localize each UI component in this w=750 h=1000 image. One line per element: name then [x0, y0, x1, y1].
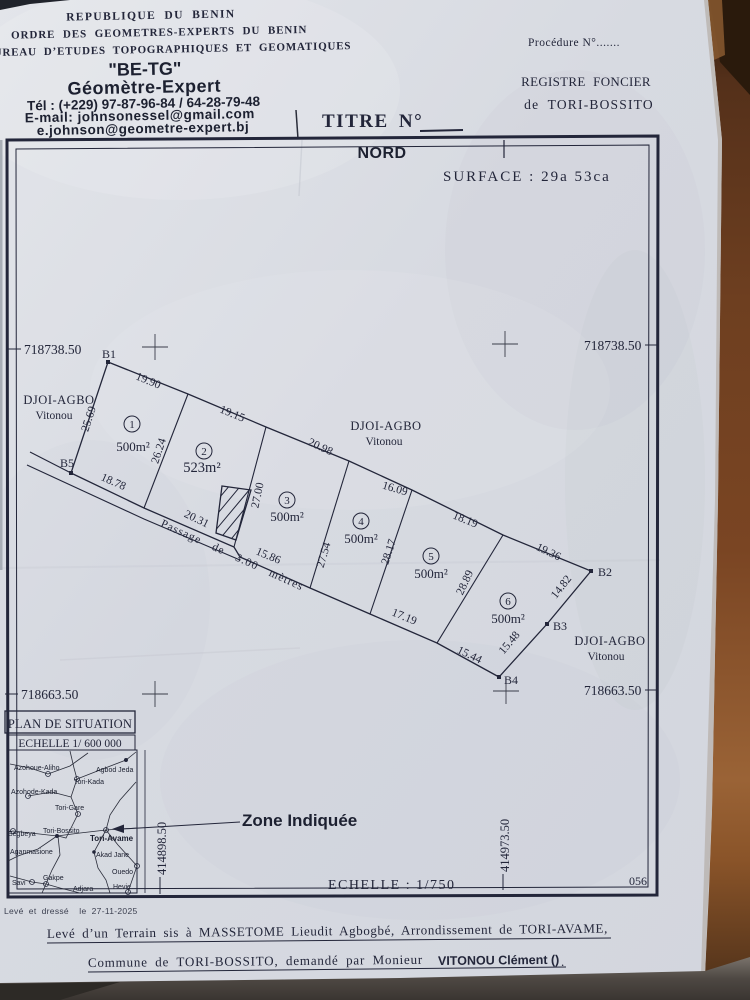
- svg-text:Gakpe: Gakpe: [43, 875, 64, 882]
- svg-text:NORD: NORD: [357, 145, 406, 162]
- svg-text:VITONOU Clément (): VITONOU Clément (): [438, 953, 559, 968]
- svg-text:414973.50: 414973.50: [498, 819, 512, 872]
- svg-text:500m²: 500m²: [491, 611, 525, 626]
- svg-text:718663.50: 718663.50: [584, 683, 642, 698]
- svg-text:500m²: 500m²: [270, 509, 304, 524]
- svg-text:Vitonou: Vitonou: [587, 651, 624, 663]
- svg-text:500m²: 500m²: [414, 566, 448, 581]
- svg-text:500m²: 500m²: [344, 531, 378, 546]
- svg-text:Tori-Kada: Tori-Kada: [74, 779, 104, 786]
- svg-text:Segbeya: Segbeya: [8, 831, 36, 838]
- svg-text:B2: B2: [598, 565, 612, 579]
- svg-text:Levé et dressé le 27-11-2025: Levé et dressé le 27-11-2025: [4, 906, 138, 916]
- svg-text:718738.50: 718738.50: [584, 338, 642, 353]
- svg-text:Tori-Bossito: Tori-Bossito: [43, 828, 80, 835]
- svg-text:Hevie: Hevie: [113, 884, 131, 891]
- svg-text:DJOI-AGBO: DJOI-AGBO: [23, 393, 94, 407]
- svg-text:056: 056: [629, 874, 647, 888]
- svg-text:Agbod Jeda: Agbod Jeda: [96, 767, 133, 774]
- svg-text:6: 6: [505, 596, 511, 608]
- svg-text:Tori-Avame: Tori-Avame: [90, 834, 134, 843]
- svg-text:Adjara: Adjara: [73, 886, 93, 893]
- svg-text:Procédure N°.......: Procédure N°.......: [528, 37, 620, 49]
- svg-text:TITRE N°: TITRE N°: [322, 111, 423, 132]
- svg-text:PLAN DE SITUATION: PLAN DE SITUATION: [8, 717, 132, 731]
- svg-text:SURFACE : 29a 53ca: SURFACE : 29a 53ca: [443, 169, 611, 185]
- svg-text:Savi: Savi: [12, 880, 26, 887]
- svg-text:718663.50: 718663.50: [21, 687, 79, 702]
- svg-text:414898.50: 414898.50: [155, 822, 169, 875]
- svg-text:Akad Jane: Akad Jane: [96, 852, 129, 859]
- svg-text:Azohode-Kada: Azohode-Kada: [11, 789, 57, 796]
- svg-text:Ouedo: Ouedo: [112, 869, 133, 876]
- svg-text:B5: B5: [60, 456, 74, 470]
- svg-text:4: 4: [358, 516, 364, 528]
- svg-text:Vitonou: Vitonou: [35, 410, 72, 422]
- svg-text:ECHELLE 1/ 600 000: ECHELLE 1/ 600 000: [18, 738, 121, 750]
- svg-text:Aganmasione: Aganmasione: [10, 849, 53, 856]
- svg-text:1: 1: [129, 419, 135, 431]
- svg-text:DJOI-AGBO: DJOI-AGBO: [350, 419, 421, 433]
- svg-text:523m²: 523m²: [183, 460, 221, 476]
- svg-text:Tori-Gare: Tori-Gare: [55, 805, 84, 812]
- svg-text:5: 5: [428, 551, 434, 563]
- svg-text:B1: B1: [102, 347, 116, 361]
- svg-text:3: 3: [284, 495, 290, 507]
- svg-text:REGISTRE FONCIER: REGISTRE FONCIER: [521, 74, 651, 89]
- svg-text:B4: B4: [504, 673, 518, 687]
- svg-text:Vitonou: Vitonou: [365, 436, 402, 448]
- svg-text:Azohoue-Aliho: Azohoue-Aliho: [14, 765, 60, 772]
- svg-text:500m²: 500m²: [116, 439, 150, 454]
- svg-text:B3: B3: [553, 619, 567, 633]
- svg-text:718738.50: 718738.50: [24, 342, 82, 357]
- svg-text:Zone Indiquée: Zone Indiquée: [242, 811, 357, 830]
- svg-text:de TORI-BOSSITO: de TORI-BOSSITO: [524, 97, 654, 112]
- svg-text:ECHELLE : 1/750: ECHELLE : 1/750: [328, 878, 456, 893]
- svg-text:DJOI-AGBO: DJOI-AGBO: [574, 634, 645, 648]
- svg-text:2: 2: [201, 446, 207, 458]
